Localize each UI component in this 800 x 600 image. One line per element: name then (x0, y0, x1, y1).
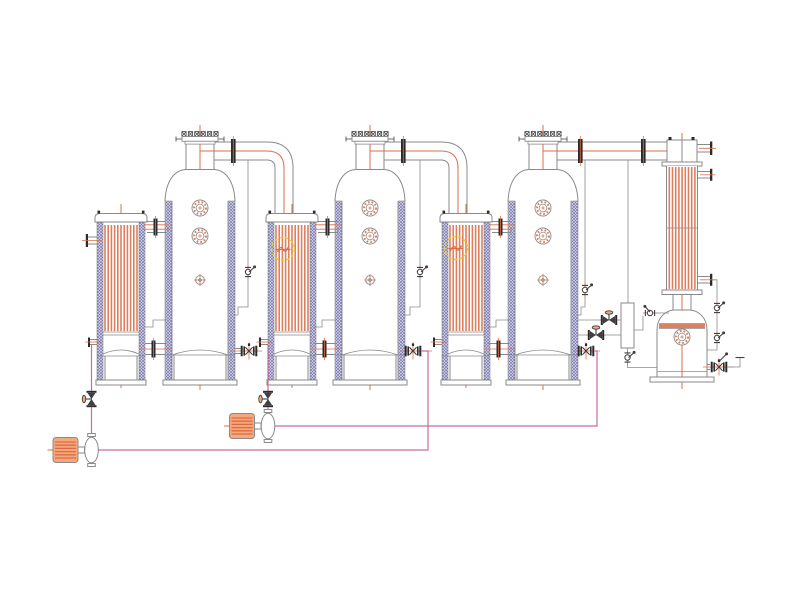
tube-sheet-top (662, 162, 702, 166)
process-diagram (0, 0, 800, 600)
tube-sheet-bottom (662, 290, 702, 295)
receiver-sight-glass (674, 329, 690, 345)
receiver-base (650, 377, 714, 382)
diagram-canvas (0, 0, 800, 600)
